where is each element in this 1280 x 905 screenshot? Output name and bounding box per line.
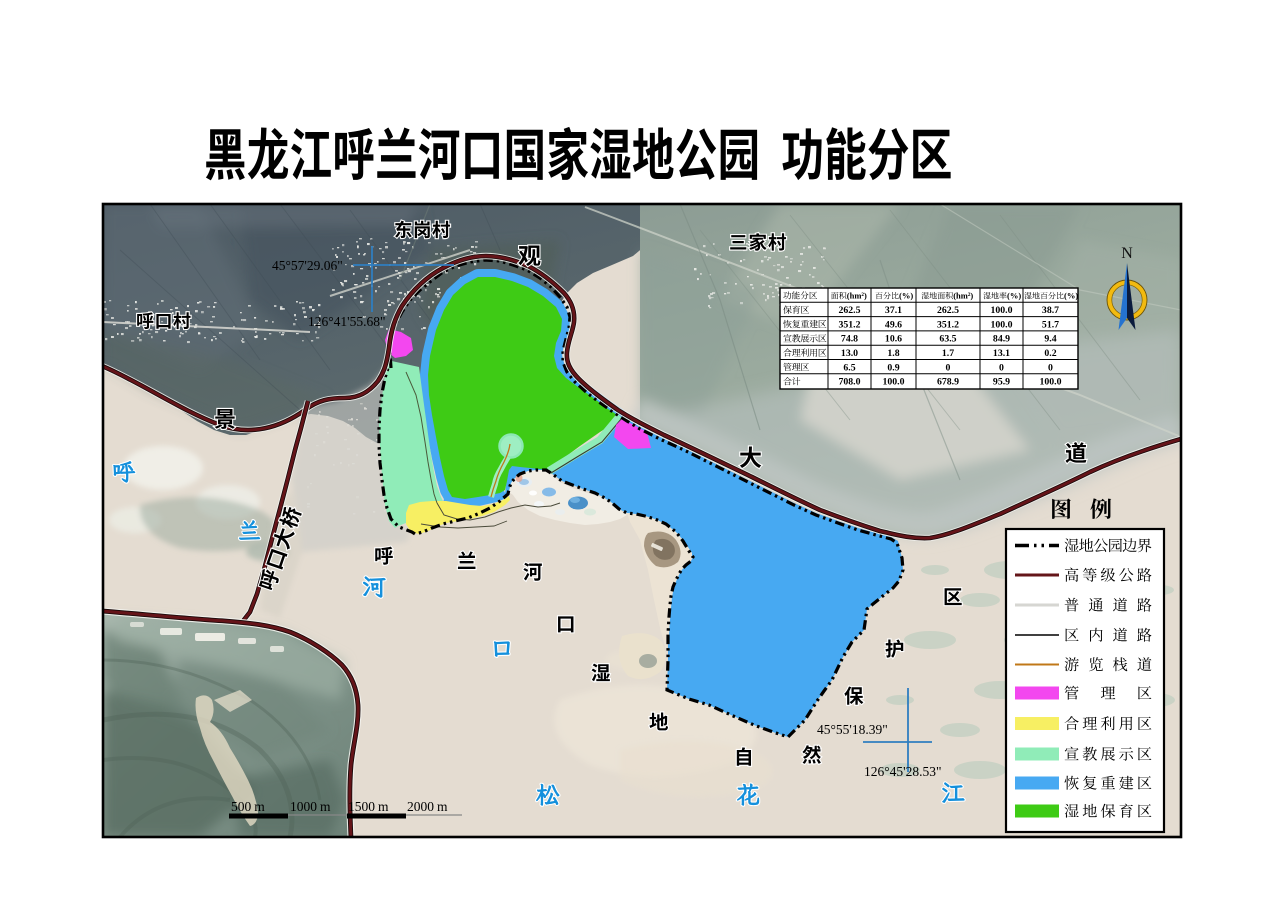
svg-text:9.4: 9.4 (1044, 334, 1056, 345)
svg-text:678.9: 678.9 (937, 377, 959, 388)
svg-text:95.9: 95.9 (993, 377, 1010, 388)
svg-text:84.9: 84.9 (993, 334, 1010, 345)
svg-text:(%): (%) (1064, 291, 1078, 301)
svg-text:1500m: 1500m (348, 799, 389, 814)
svg-text:13.1: 13.1 (993, 348, 1010, 359)
svg-text:13.0: 13.0 (841, 348, 858, 359)
svg-text:1.8: 1.8 (887, 348, 899, 359)
svg-text:0: 0 (999, 362, 1004, 373)
svg-text:(%): (%) (1007, 291, 1021, 301)
svg-text:100.0: 100.0 (990, 319, 1012, 330)
svg-text:351.2: 351.2 (838, 319, 860, 330)
svg-text:N: N (1121, 245, 1133, 262)
svg-text:10.6: 10.6 (885, 334, 902, 345)
svg-text:0.2: 0.2 (1044, 348, 1056, 359)
svg-text:45°57'29.06": 45°57'29.06" (272, 258, 343, 273)
svg-text:74.8: 74.8 (841, 334, 858, 345)
svg-text:63.5: 63.5 (939, 334, 956, 345)
svg-text:37.1: 37.1 (885, 305, 902, 316)
svg-text:500m: 500m (231, 799, 265, 814)
svg-text:1000m: 1000m (290, 799, 331, 814)
svg-text:0: 0 (1048, 362, 1053, 373)
svg-text:0: 0 (946, 362, 951, 373)
svg-text:51.7: 51.7 (1042, 319, 1059, 330)
svg-text:38.7: 38.7 (1042, 305, 1059, 316)
svg-text:126°45'28.53": 126°45'28.53" (864, 764, 941, 779)
svg-text:351.2: 351.2 (937, 319, 959, 330)
svg-text:(hm²): (hm²) (847, 291, 867, 301)
svg-text:0.9: 0.9 (887, 362, 899, 373)
svg-text:262.5: 262.5 (838, 305, 860, 316)
svg-text:6.5: 6.5 (843, 362, 855, 373)
svg-text:262.5: 262.5 (937, 305, 959, 316)
svg-text:(%): (%) (899, 291, 913, 301)
svg-text:100.0: 100.0 (882, 377, 904, 388)
svg-text:126°41'55.68": 126°41'55.68" (308, 314, 385, 329)
svg-text:49.6: 49.6 (885, 319, 902, 330)
svg-text:708.0: 708.0 (838, 377, 860, 388)
svg-text:1.7: 1.7 (942, 348, 954, 359)
svg-text:100.0: 100.0 (1039, 377, 1061, 388)
svg-text:100.0: 100.0 (990, 305, 1012, 316)
svg-text:(hm²): (hm²) (953, 291, 973, 301)
svg-text:45°55'18.39": 45°55'18.39" (817, 722, 888, 737)
svg-text:2000m: 2000m (407, 799, 448, 814)
